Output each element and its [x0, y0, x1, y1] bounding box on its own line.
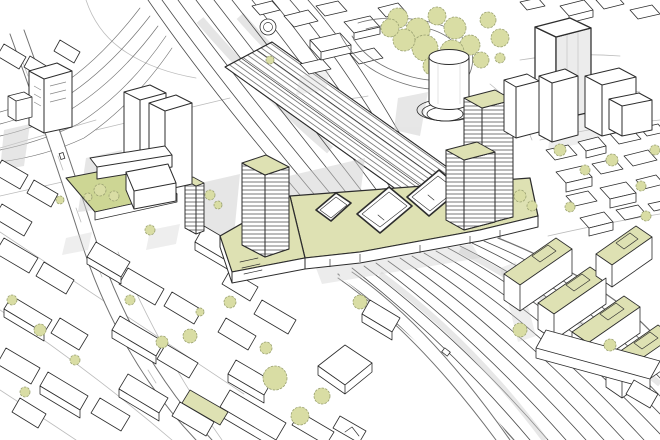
- hatched-tower-west: [242, 155, 289, 257]
- hatched-slab-thin: [185, 177, 204, 234]
- aerial-illustration-svg: [0, 0, 660, 440]
- white-tower-pair: [504, 69, 578, 142]
- illustration: [0, 0, 660, 440]
- gas-tank: [260, 19, 276, 35]
- hatched-tower-mid: [446, 142, 495, 230]
